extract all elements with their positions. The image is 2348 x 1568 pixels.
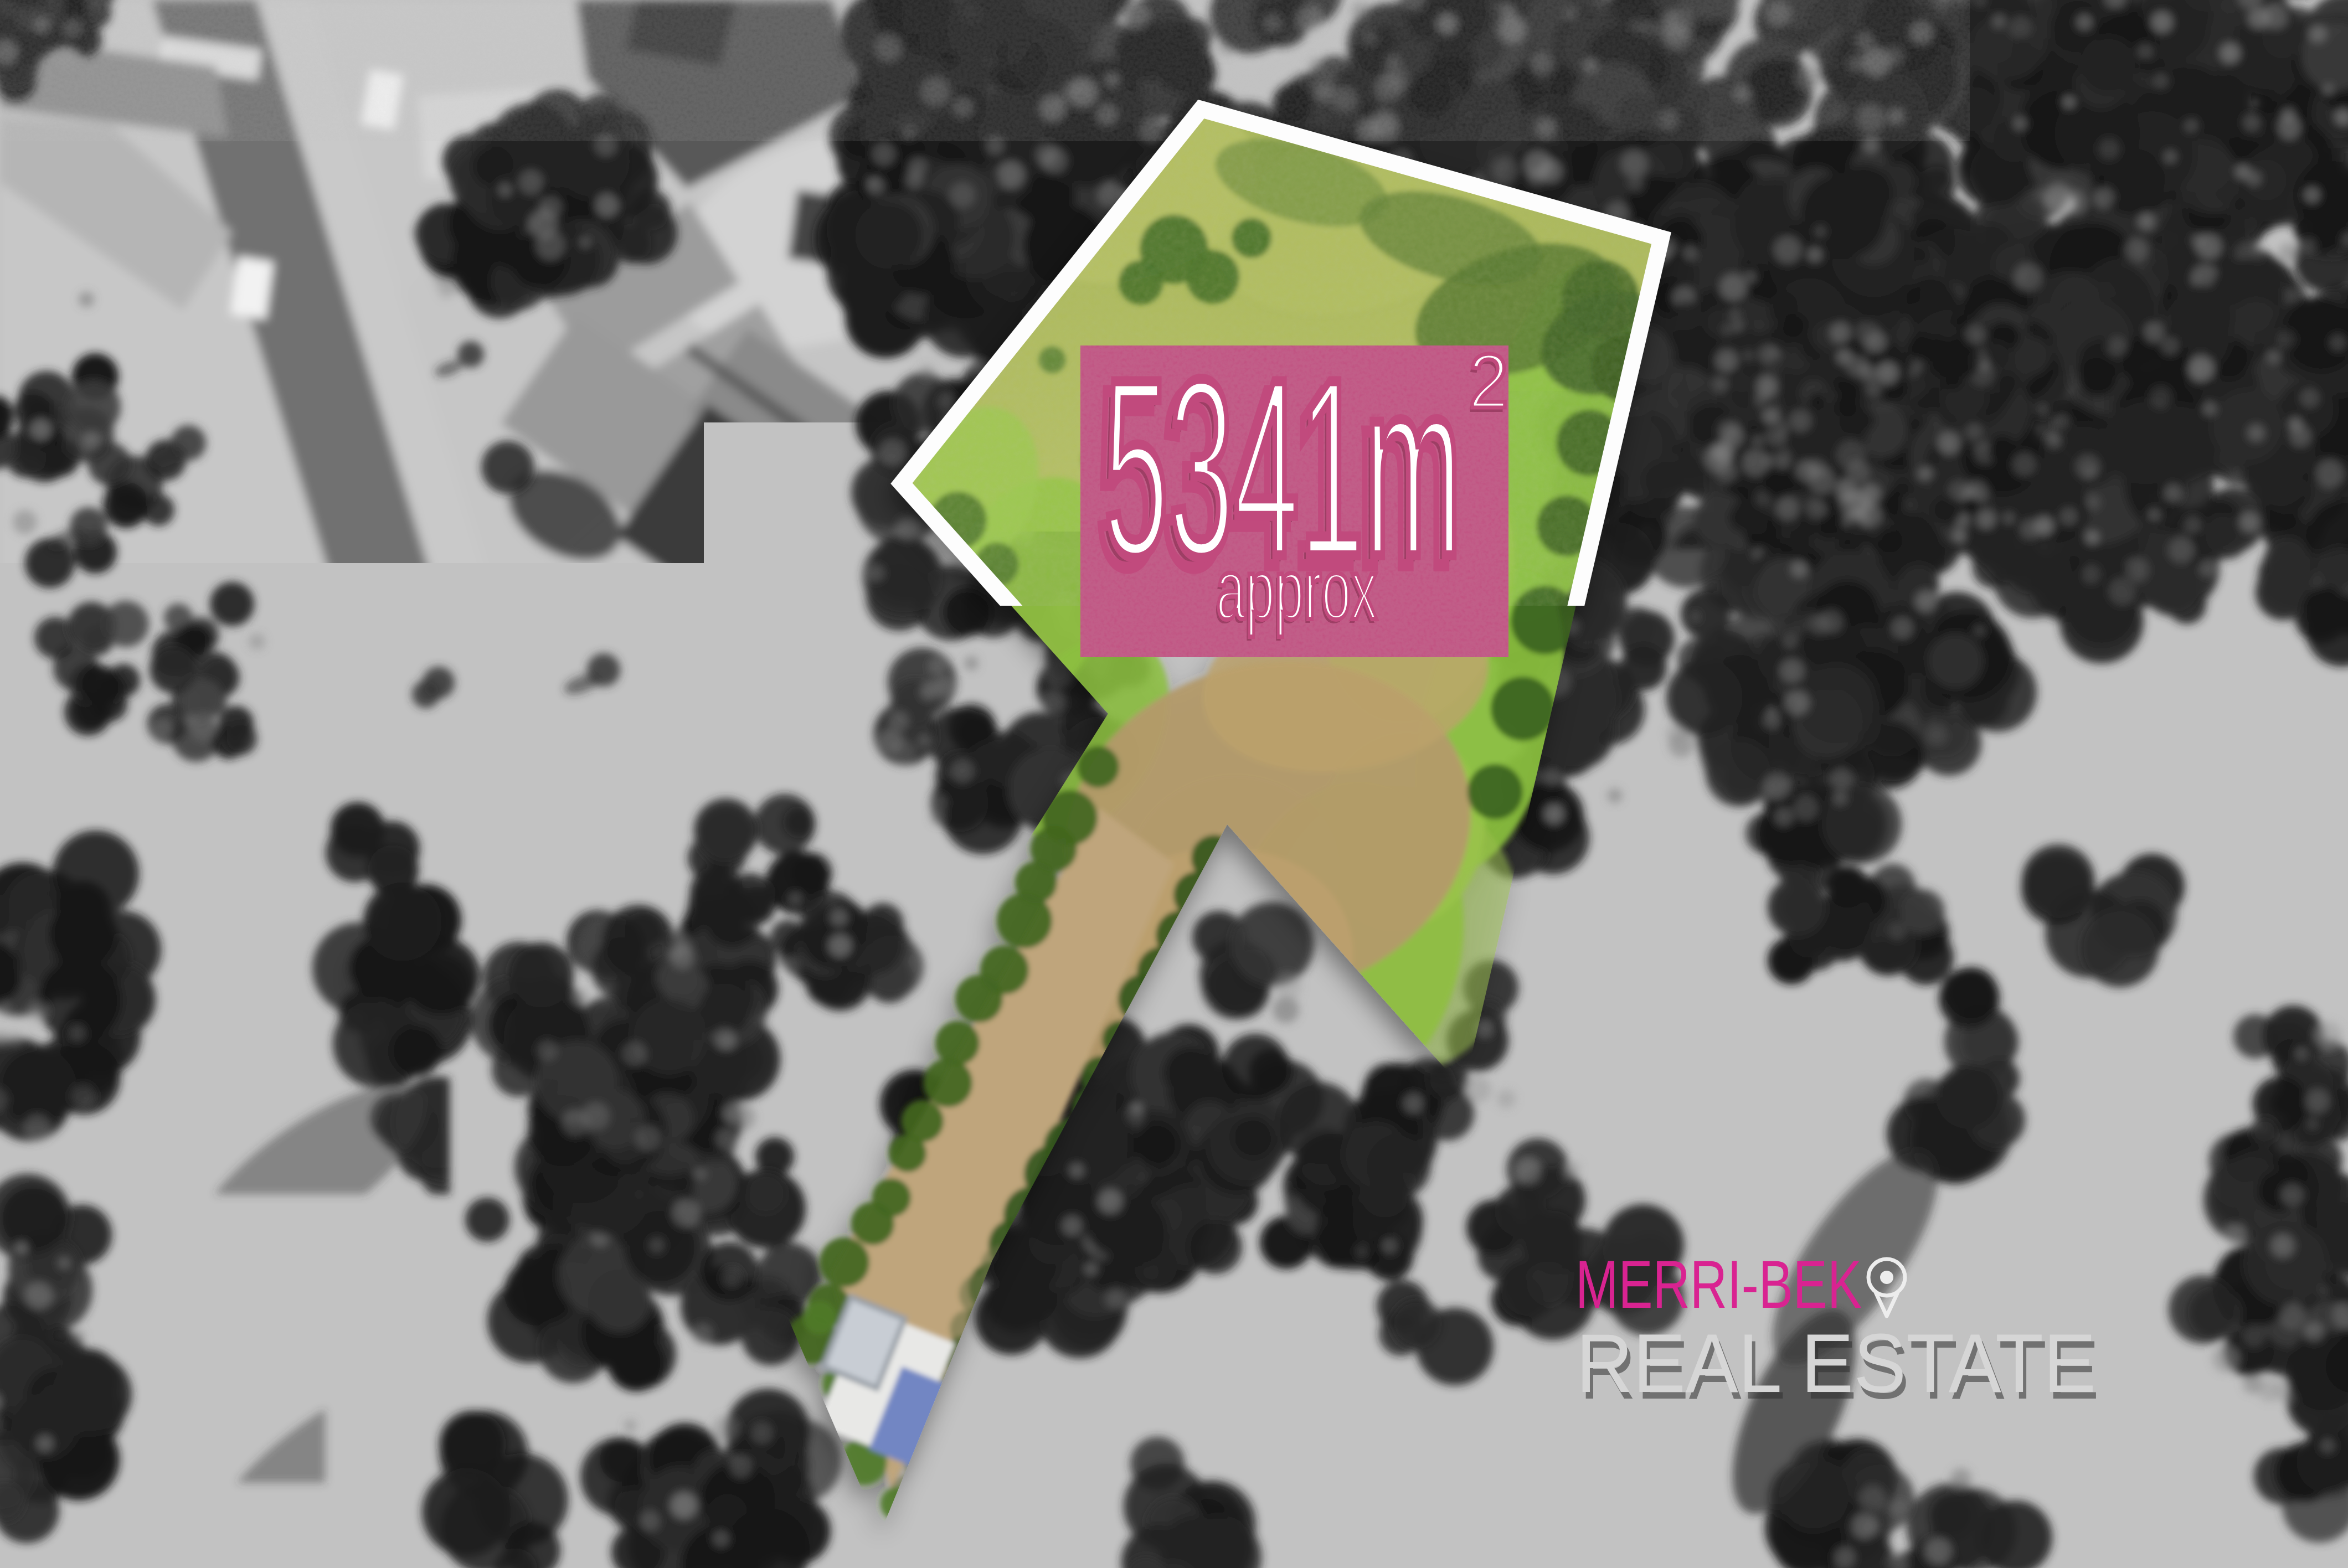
svg-text:2: 2 [1469,337,1508,424]
svg-text:MERRI-BEK: MERRI-BEK [1575,1247,1862,1322]
svg-text:approx: approx [1216,542,1377,637]
svg-text:REAL ESTATE: REAL ESTATE [1576,1316,2096,1410]
